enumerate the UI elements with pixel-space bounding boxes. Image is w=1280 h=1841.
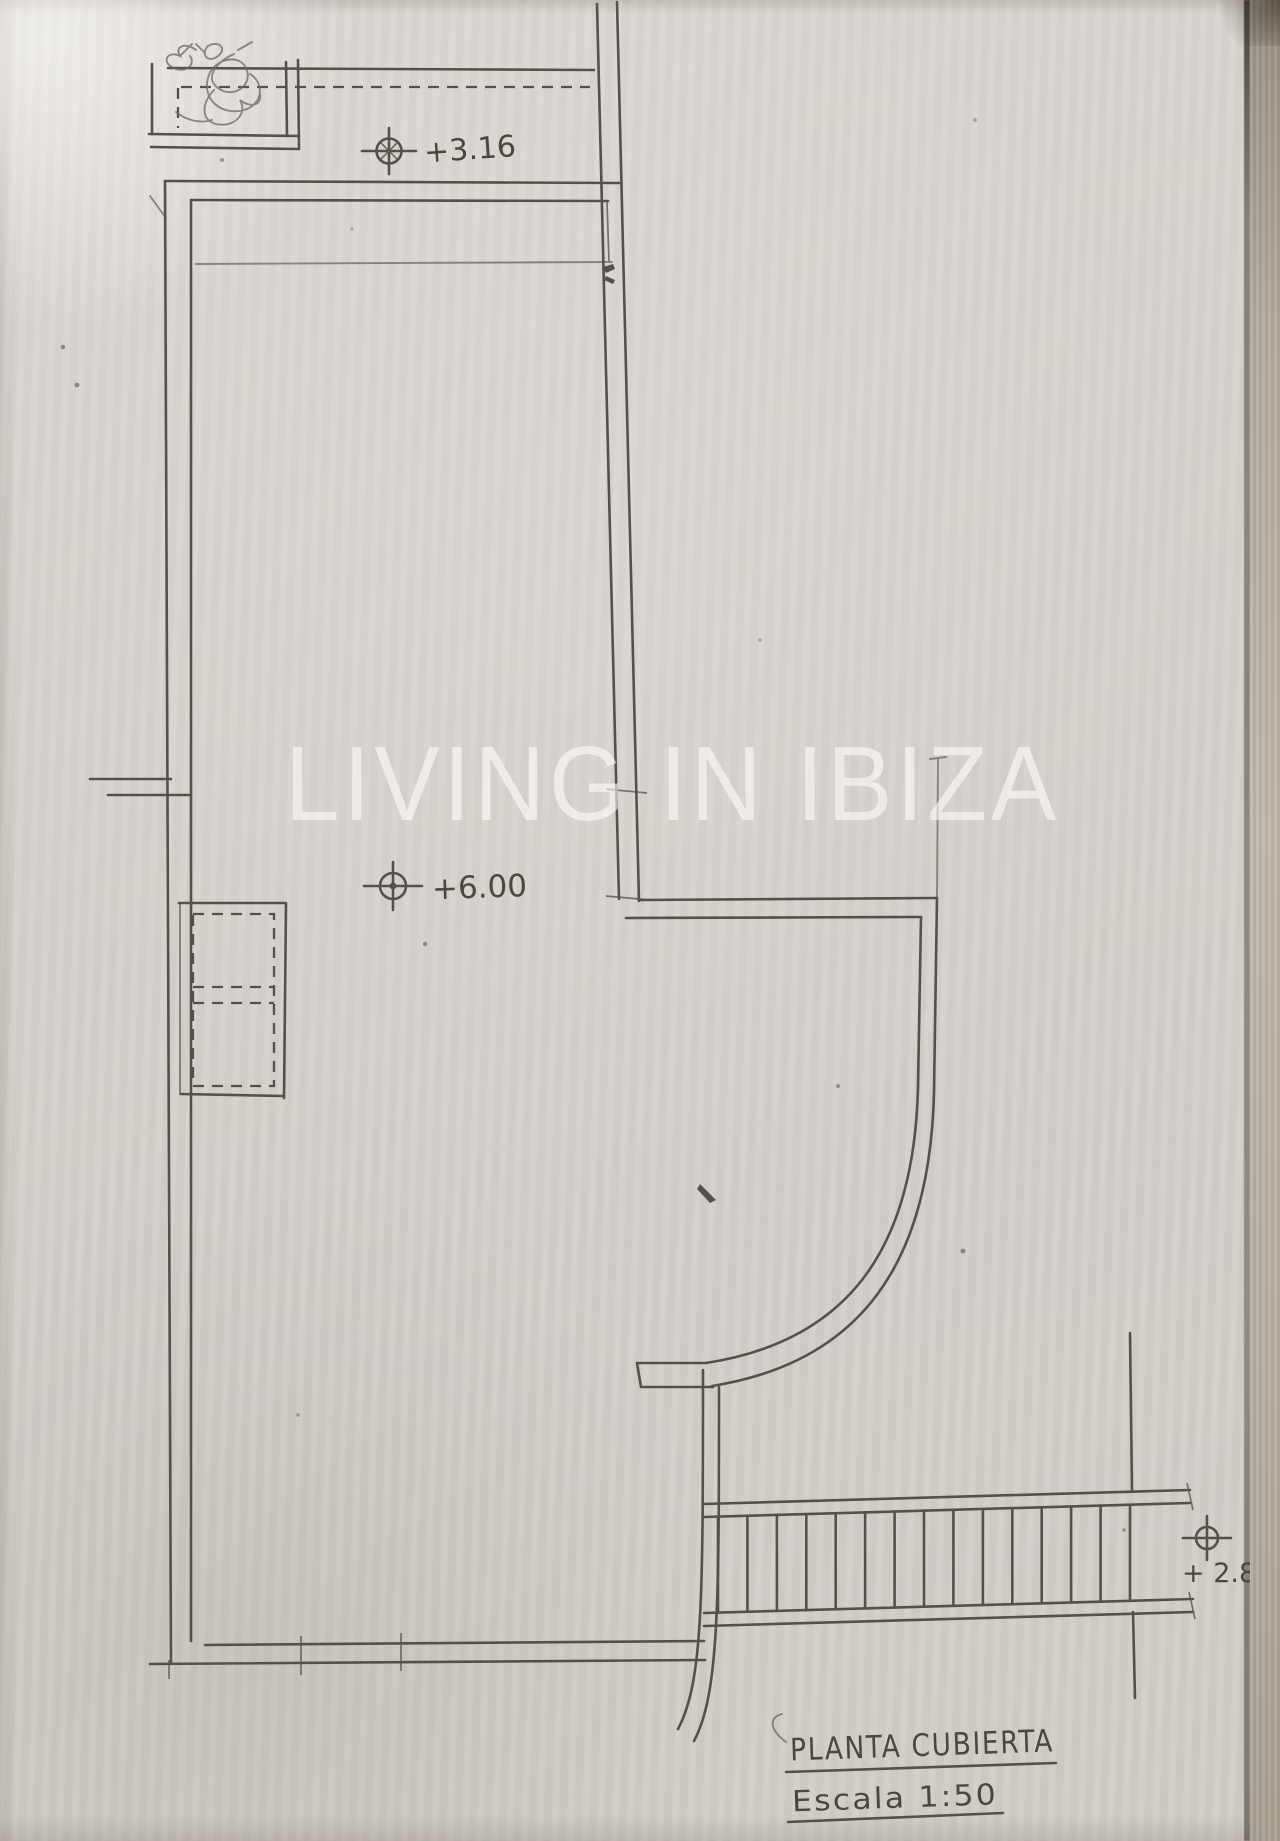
level-roof-label: +3.16 [423,129,517,170]
corner-shadow [1210,0,1280,46]
curved-wall-outer [712,1092,934,1386]
left-wall-stub [90,779,191,795]
skylight-shaft [179,903,286,1098]
stair-side-wall [678,1370,719,1741]
pencil-doodle [167,42,261,125]
scale-label: Escala 1:50 [791,1777,998,1818]
wall-stub [637,1363,713,1387]
curved-wall-wing [626,757,946,1387]
title-block: PLANTA CUBIERTA Escala 1:50 [773,1714,1056,1822]
curved-wall-inner [706,1088,918,1363]
floor-plan-drawing: +3.16 +6.00 + 2.80 PLANTA CUBIERTA Escal… [0,0,1280,1841]
plan-title: PLANTA CUBIERTA [789,1723,1054,1768]
level-marker-main: +6.00 [364,862,528,910]
main-room-walls [90,181,705,1679]
chimney-detail-box [149,42,299,149]
level-marker-roof: +3.16 [362,128,517,174]
background-surface-band [1250,0,1280,1841]
floor-plan-photo: +3.16 +6.00 + 2.80 PLANTA CUBIERTA Escal… [0,0,1280,1841]
stairs [704,1333,1195,1698]
bottom-wall-ticks [301,1633,401,1675]
watermark-text: LIVING IN IBIZA [285,725,1060,843]
level-main-label: +6.00 [431,868,527,907]
stair-steps [718,1505,1130,1613]
roof-terrace [149,42,594,149]
